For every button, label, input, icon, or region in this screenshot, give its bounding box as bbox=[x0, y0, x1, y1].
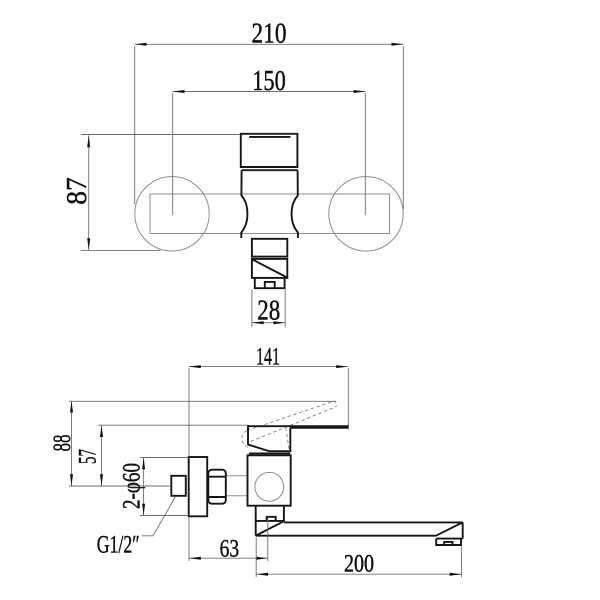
svg-text:150: 150 bbox=[252, 65, 286, 97]
svg-text:210: 210 bbox=[252, 17, 287, 49]
svg-text:28: 28 bbox=[257, 294, 280, 326]
svg-text:63: 63 bbox=[220, 536, 240, 563]
svg-text:200: 200 bbox=[344, 551, 374, 578]
svg-text:57: 57 bbox=[75, 449, 102, 464]
svg-text:87: 87 bbox=[61, 177, 93, 205]
svg-text:2-φ60: 2-φ60 bbox=[118, 463, 145, 509]
svg-text:G1/2″: G1/2″ bbox=[97, 532, 140, 559]
svg-text:141: 141 bbox=[256, 344, 280, 371]
svg-text:88: 88 bbox=[49, 435, 76, 452]
